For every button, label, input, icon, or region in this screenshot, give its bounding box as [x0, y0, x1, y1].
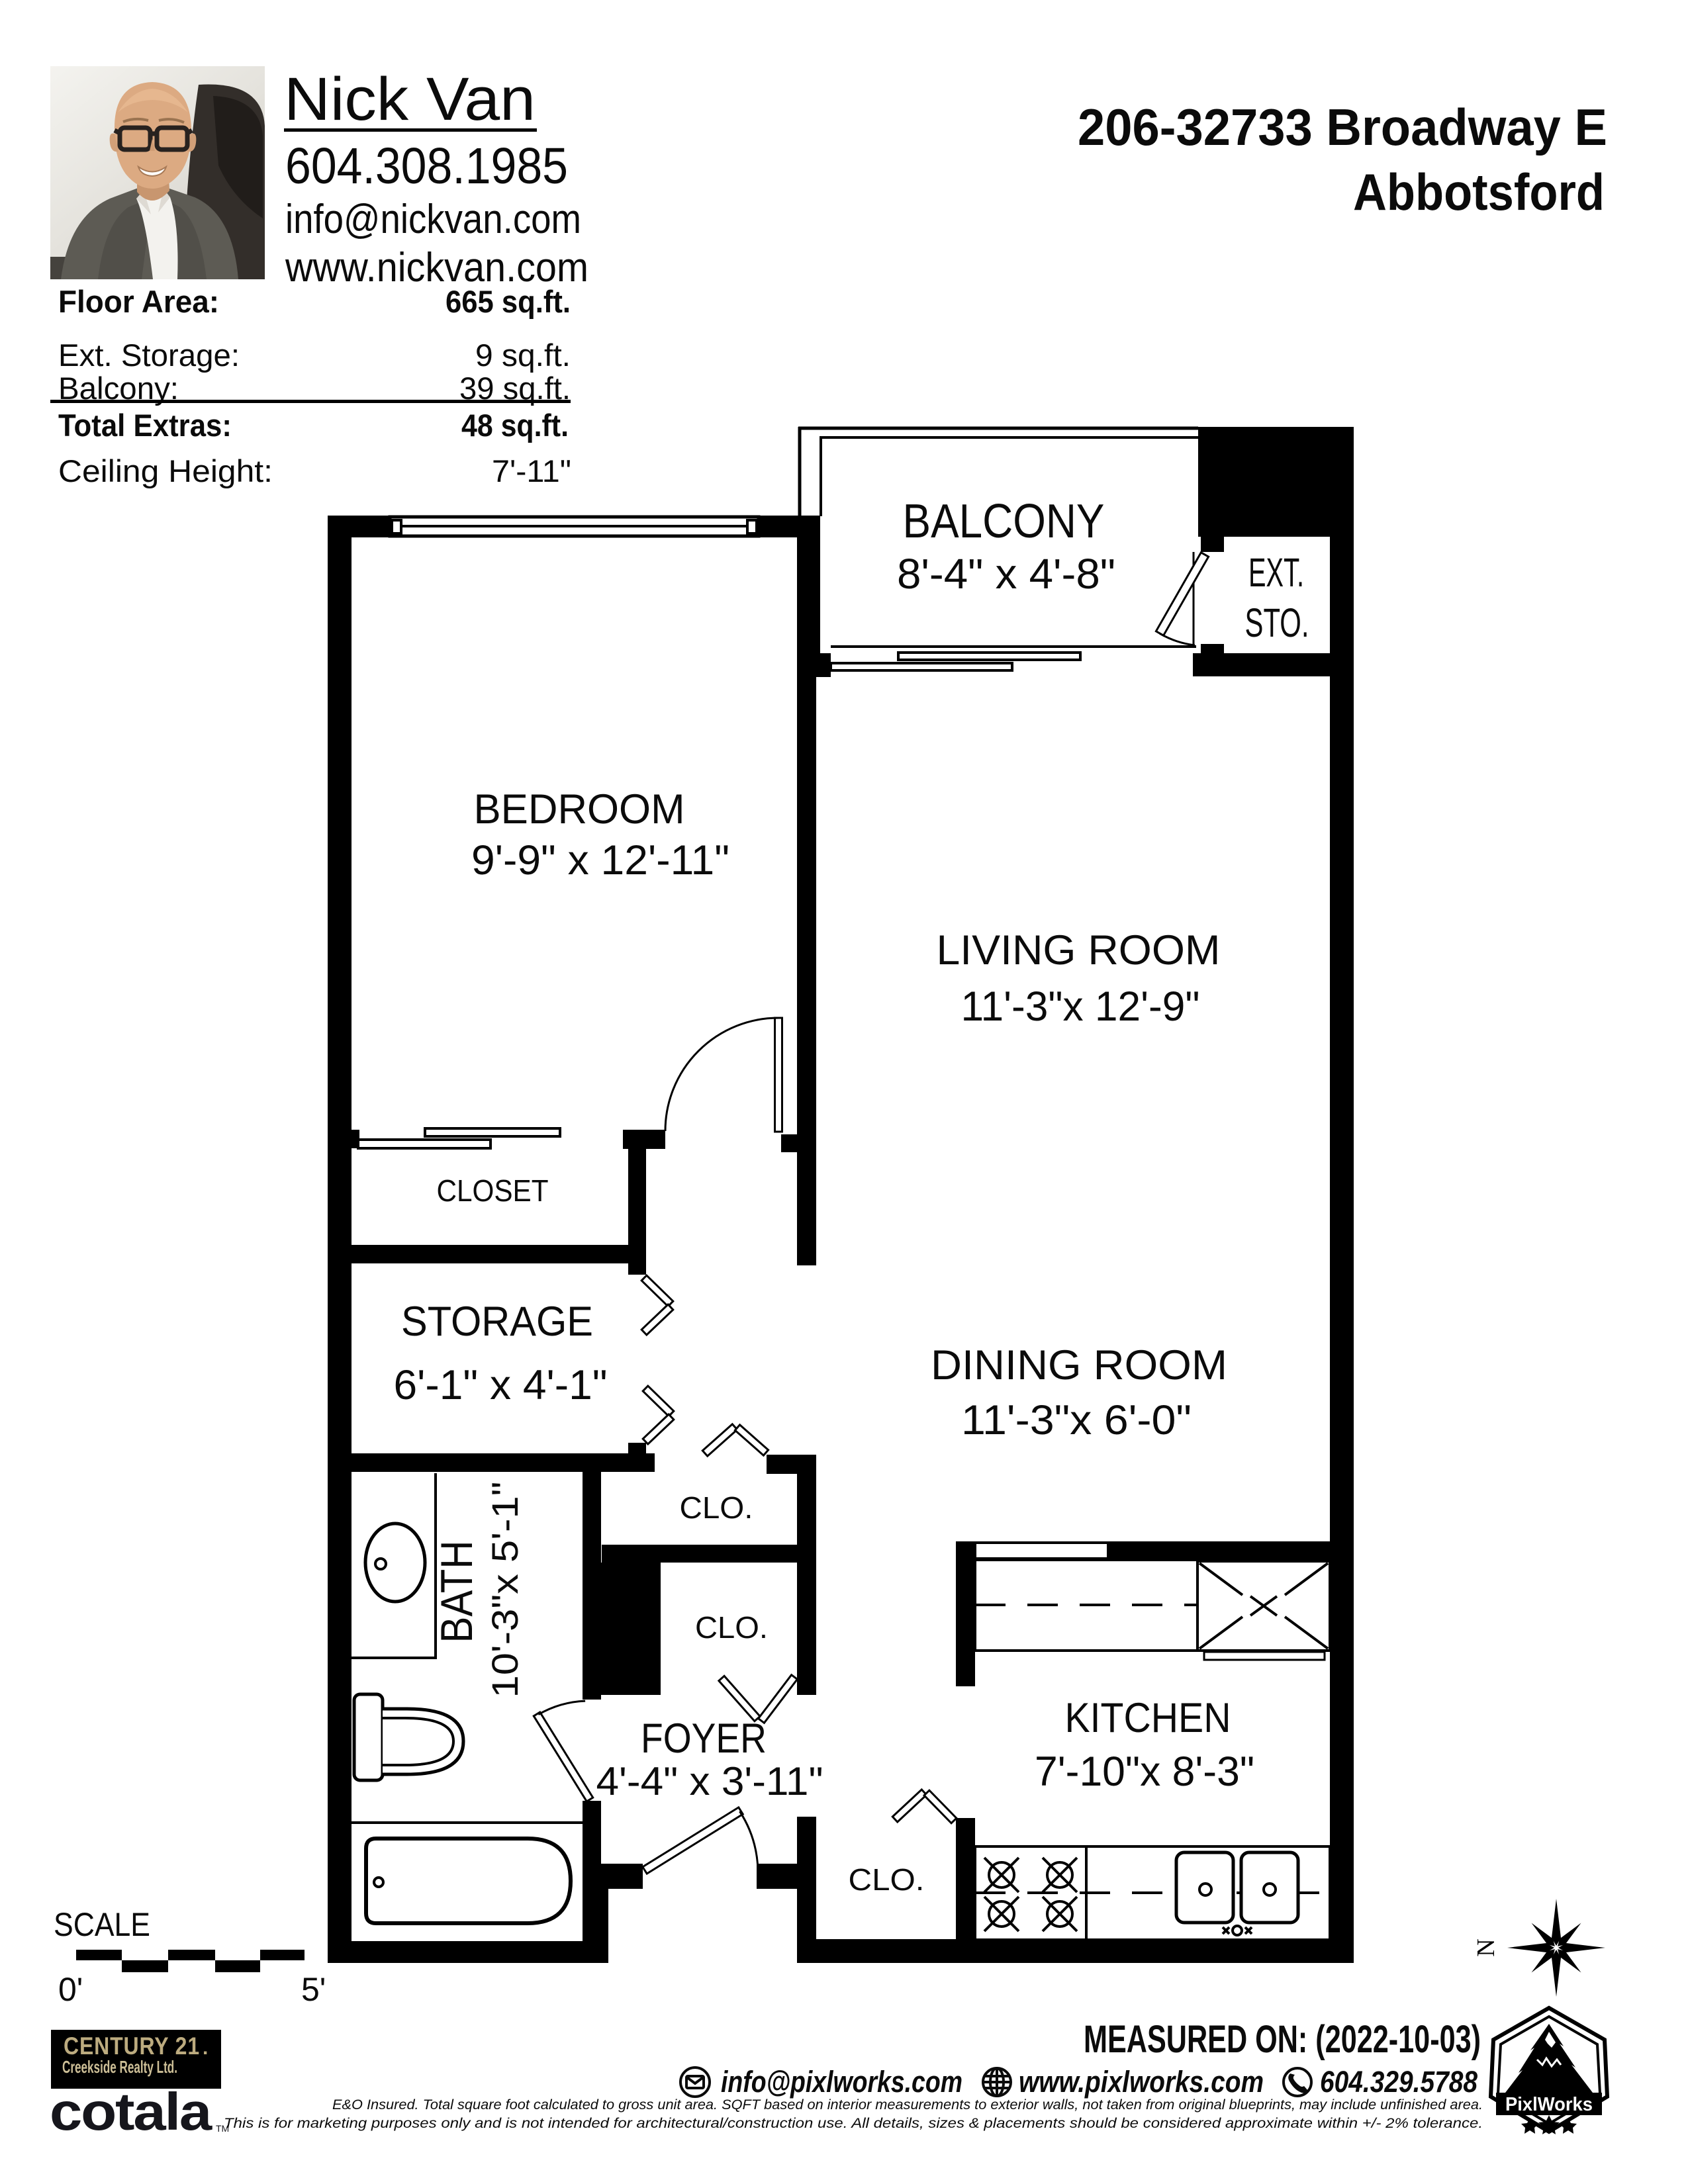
svg-text:7'-10"x 8'-3": 7'-10"x 8'-3" — [1035, 1749, 1254, 1795]
svg-text:STORAGE: STORAGE — [401, 1298, 593, 1345]
svg-text:E&O Insured. Total square foo: E&O Insured. Total square foot calculate… — [332, 2097, 1483, 2113]
svg-text:9 sq.ft.: 9 sq.ft. — [475, 338, 571, 373]
svg-text:CLO.: CLO. — [849, 1862, 925, 1897]
svg-text:5': 5' — [301, 1971, 326, 2008]
svg-text:info@nickvan.com: info@nickvan.com — [285, 197, 581, 242]
svg-text:Creekside Realty Ltd.: Creekside Realty Ltd. — [62, 2057, 177, 2077]
svg-text:206-32733 Broadway E: 206-32733 Broadway E — [1078, 98, 1607, 156]
svg-text:cotala: cotala — [50, 2082, 212, 2141]
svg-text:10'-3"x 5'-1": 10'-3"x 5'-1" — [484, 1482, 526, 1698]
svg-text:11'-3"x 6'-0": 11'-3"x 6'-0" — [961, 1397, 1192, 1443]
svg-text:9'-9" x 12'-11": 9'-9" x 12'-11" — [471, 837, 729, 884]
svg-text:.: . — [203, 2037, 208, 2059]
svg-text:Ceiling Height:: Ceiling Height: — [58, 453, 273, 488]
svg-text:info@pixlworks.com: info@pixlworks.com — [721, 2065, 962, 2099]
svg-text:BATH: BATH — [432, 1541, 482, 1643]
svg-text:Floor Area:: Floor Area: — [58, 284, 219, 319]
svg-text:Nick Van: Nick Van — [284, 66, 536, 133]
svg-text:PixlWorks: PixlWorks — [1505, 2094, 1593, 2115]
svg-text:BEDROOM: BEDROOM — [474, 786, 685, 833]
svg-text:4'-4" x 3'-11": 4'-4" x 3'-11" — [596, 1759, 823, 1803]
svg-text:11'-3"x 12'-9": 11'-3"x 12'-9" — [961, 983, 1200, 1030]
svg-text:604.308.1985: 604.308.1985 — [285, 138, 568, 195]
svg-text:STO.: STO. — [1245, 600, 1309, 645]
svg-text:CLOSET: CLOSET — [437, 1173, 549, 1208]
svg-text:0': 0' — [58, 1971, 83, 2008]
svg-text:MEASURED ON: (2022-10-03): MEASURED ON: (2022-10-03) — [1084, 2018, 1481, 2061]
svg-text:665 sq.ft.: 665 sq.ft. — [445, 284, 571, 319]
svg-text:N: N — [1472, 1938, 1500, 1956]
svg-text:CLO.: CLO. — [695, 1610, 768, 1645]
svg-text:SCALE: SCALE — [54, 1906, 150, 1943]
svg-text:DINING ROOM: DINING ROOM — [931, 1342, 1227, 1388]
svg-text:Abbotsford: Abbotsford — [1353, 163, 1605, 221]
svg-text:LIVING ROOM: LIVING ROOM — [937, 927, 1221, 974]
svg-text:8'-4" x 4'-8": 8'-4" x 4'-8" — [897, 550, 1115, 598]
svg-text:48 sq.ft.: 48 sq.ft. — [461, 408, 569, 443]
svg-text:BALCONY: BALCONY — [903, 495, 1105, 548]
svg-text:CLO.: CLO. — [680, 1490, 753, 1525]
svg-text:6'-1" x 4'-1": 6'-1" x 4'-1" — [394, 1362, 608, 1408]
svg-text:KITCHEN: KITCHEN — [1065, 1695, 1231, 1741]
svg-text:604.329.5788: 604.329.5788 — [1320, 2065, 1477, 2099]
svg-text:FOYER: FOYER — [641, 1715, 767, 1762]
svg-text:Ext. Storage:: Ext. Storage: — [58, 338, 240, 373]
svg-text:CENTURY 21: CENTURY 21 — [64, 2032, 200, 2060]
svg-text:This is for marketing purposes: This is for marketing purposes only and … — [224, 2116, 1483, 2131]
svg-text:EXT.: EXT. — [1248, 550, 1304, 595]
svg-text:7'-11": 7'-11" — [492, 453, 571, 488]
svg-text:www.pixlworks.com: www.pixlworks.com — [1019, 2065, 1264, 2099]
svg-text:Total Extras:: Total Extras: — [58, 408, 232, 443]
